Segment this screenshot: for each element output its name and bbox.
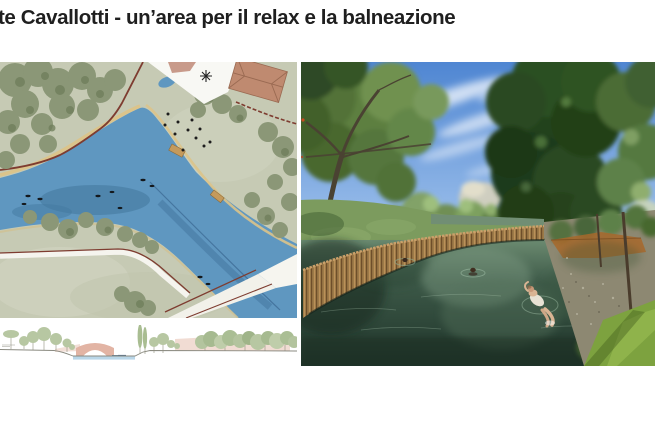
site-plan-image [0, 62, 297, 318]
presentation-slide: te Cavallotti - un’area per il relax e l… [0, 0, 655, 437]
river-photo-image [301, 62, 655, 366]
section-bridge-arch [76, 343, 114, 356]
section-ground-line [0, 350, 297, 357]
section-drawing-image [0, 325, 297, 367]
slide-title: te Cavallotti - un’area per il relax e l… [0, 6, 518, 30]
